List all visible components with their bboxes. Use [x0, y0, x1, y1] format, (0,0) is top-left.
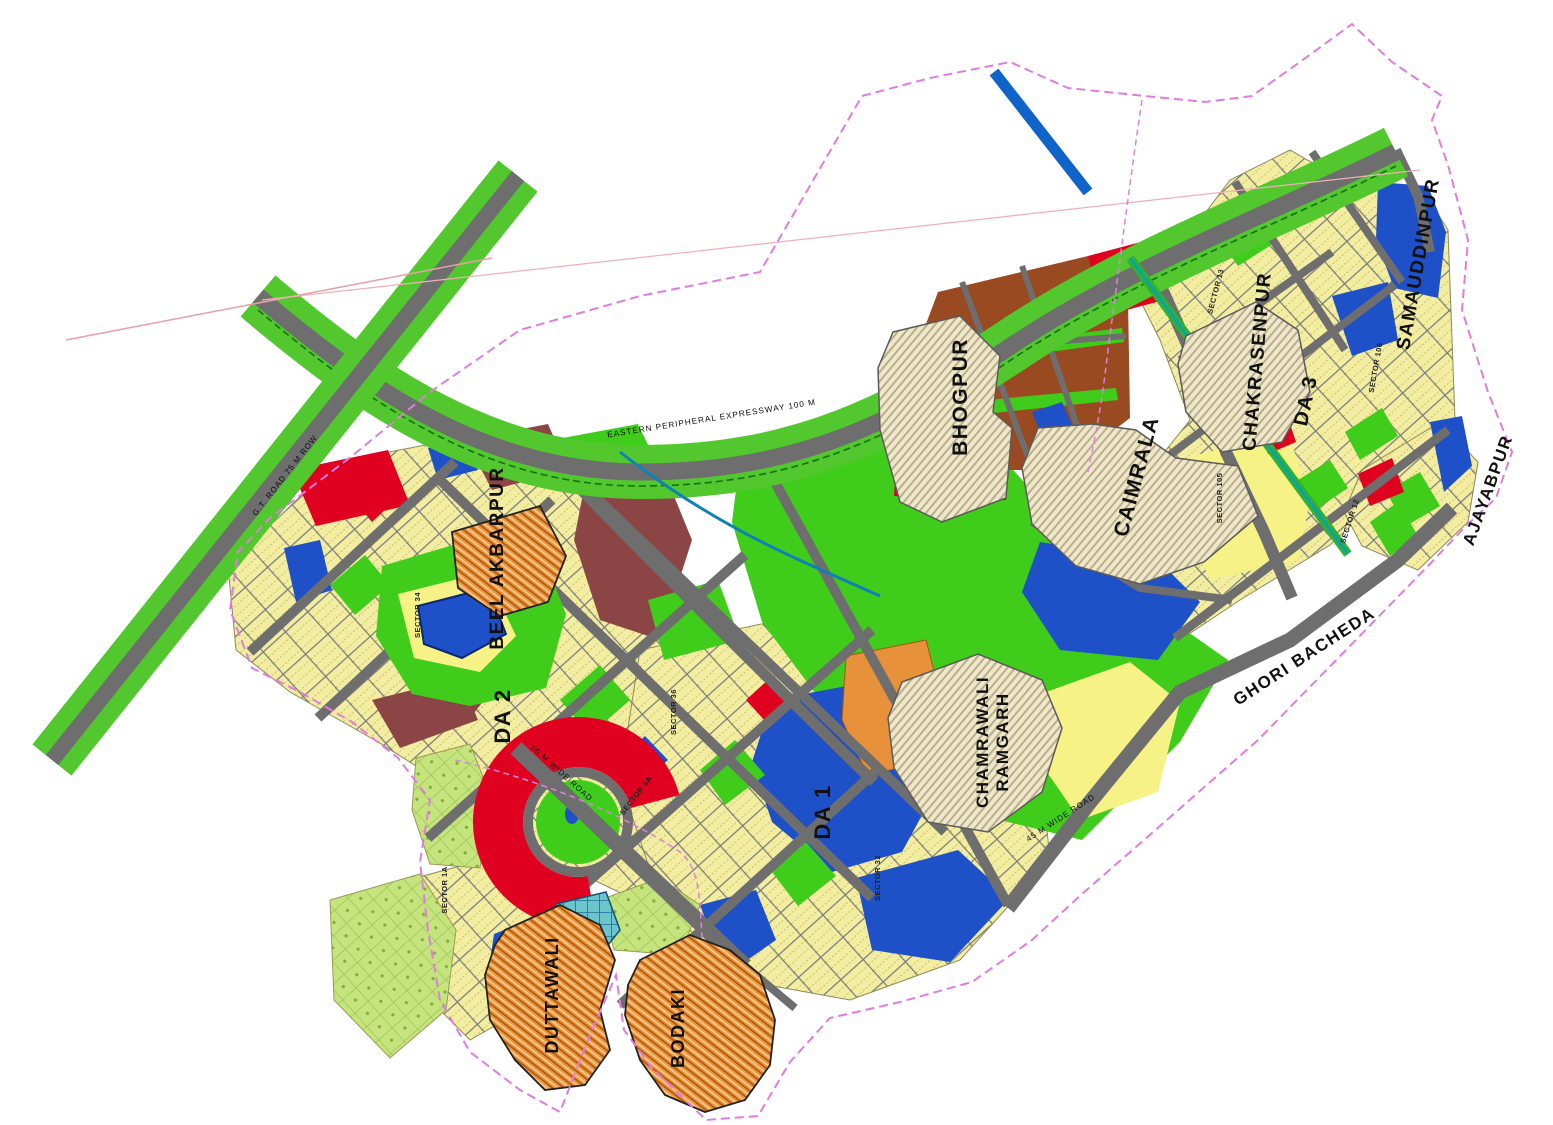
region-label-ramgarh: RAMGARH	[993, 692, 1012, 791]
sector-label: SECTOR 34	[413, 592, 422, 638]
abadi-bhogpur	[878, 316, 1012, 522]
sector-label: SECTOR 1A	[440, 866, 449, 913]
sector-label: SECTOR 36	[669, 689, 678, 735]
canal-line	[994, 72, 1088, 192]
region-label-bhogpur: BHOGPUR	[949, 338, 972, 456]
region-label-beel-akbarpur: BEEL AKBARPUR	[487, 466, 508, 649]
region-label-bodaki: BODAKI	[668, 988, 688, 1068]
region-label-chamrawali: CHAMRAWALI	[973, 676, 992, 808]
map-canvas: EASTERN PERIPHERAL EXPRESSWAY 100 M G.T.…	[0, 0, 1553, 1125]
region-label-da2: DA 2	[490, 688, 515, 743]
region-label-duttawali: DUTTAWALI	[542, 936, 562, 1053]
sector-label: SECTOR 105	[1215, 473, 1224, 524]
landuse-map: EASTERN PERIPHERAL EXPRESSWAY 100 M G.T.…	[0, 0, 1553, 1125]
sector-label: SECTOR 32	[873, 855, 882, 901]
region-label-da1: DA 1	[810, 784, 835, 839]
